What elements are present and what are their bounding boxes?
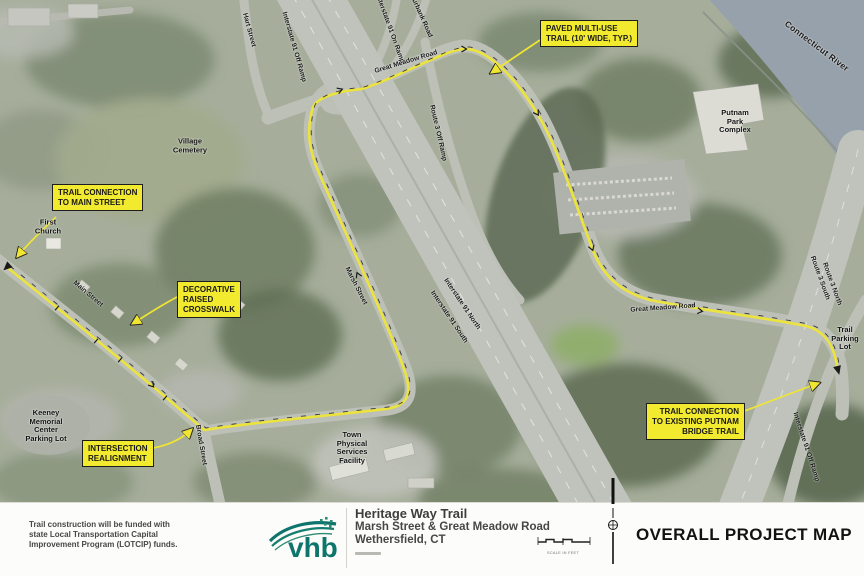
title-block-footer: Trail construction will be funded with s… [0,502,864,576]
scale-bar [536,533,592,547]
plan-date-note [355,552,381,555]
callout-trail-connection-putnam: TRAIL CONNECTION TO EXISTING PUTNAM BRID… [646,403,745,440]
place-label-trail-parking: Trail Parking Lot [831,326,859,352]
project-location: Wethersfield, CT [355,534,550,547]
vhb-logo-text: vhb [288,532,338,561]
place-label-first-church: First Church [35,218,61,235]
footer-divider [346,508,347,568]
place-label-keeney-memorial: Keeney Memorial Center Parking Lot [25,409,66,443]
vhb-logo: vhb [268,515,344,561]
sheet-title: OVERALL PROJECT MAP [636,525,836,545]
callout-intersection-realignment: INTERSECTION REALIGNMENT [82,440,154,467]
funding-note: Trail construction will be funded with s… [29,520,177,549]
match-line-ornament [603,478,623,570]
callout-decorative-raised-crosswalk: DECORATIVE RAISED CROSSWALK [177,281,241,318]
project-title-block: Heritage Way Trail Marsh Street & Great … [355,506,550,555]
place-label-village-cemetery: Village Cemetery [173,137,207,154]
place-label-putnam-park: Putnam Park Complex [719,109,751,135]
aerial-map [0,0,864,576]
callout-trail-connection-main-street: TRAIL CONNECTION TO MAIN STREET [52,184,143,211]
project-subtitle: Marsh Street & Great Meadow Road [355,521,550,534]
place-label-town-physical: Town Physical Services Facility [337,431,368,465]
callout-paved-multi-use-trail: PAVED MULTI-USE TRAIL (10' WIDE, TYP.) [540,20,638,47]
scale-caption: SCALE IN FEET [536,550,590,555]
overall-project-map-sheet: Hart Street Interstate 91 Off Ramp Inter… [0,0,864,576]
project-title: Heritage Way Trail [355,506,550,521]
